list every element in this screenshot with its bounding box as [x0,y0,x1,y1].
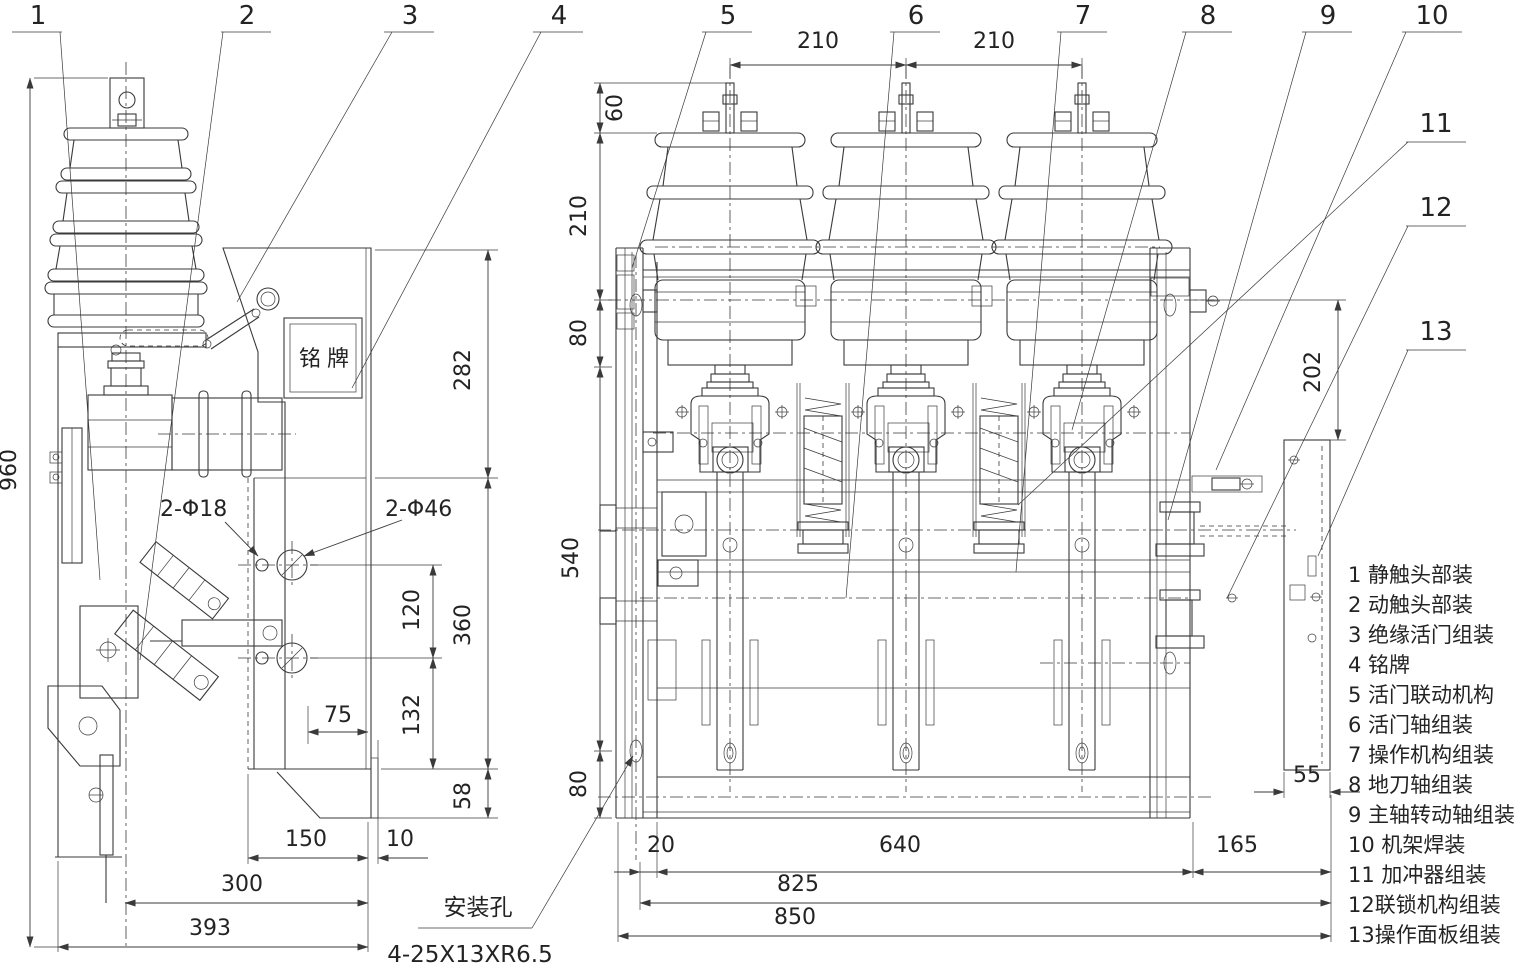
dim-165: 165 [1216,833,1258,858]
callout-6: 6 [908,1,925,31]
callout-5: 5 [720,1,737,31]
base-beam [616,777,1190,818]
mounting-slot-spec: 4-25X13XR6.5 [387,942,553,968]
callout-2: 2 [239,1,256,31]
dim-282: 282 [451,349,476,391]
left-frame-column [616,248,657,860]
pole-body [50,353,296,563]
dim-80-top: 80 [567,319,592,347]
legend-item-12: 12联锁机构组装 [1348,893,1501,917]
legend-item-2: 2 动触头部装 [1348,593,1473,617]
dim-960: 960 [0,449,22,491]
callout-11: 11 [1419,109,1452,139]
dim-825: 825 [777,872,819,897]
dim-2xphi46: 2-Φ46 [385,497,452,522]
dim-75: 75 [324,703,352,728]
callout-7: 7 [1075,1,1092,31]
mounting-hole-label: 安装孔 [444,895,513,921]
legend-item-10: 10 机架焊装 [1348,833,1465,857]
static-contact-terminal [110,78,144,128]
dim-120: 120 [400,589,425,631]
callout-13: 13 [1419,317,1452,347]
legend-item-4: 4 铭牌 [1348,653,1410,677]
dim-360: 360 [451,604,476,646]
dim-10: 10 [386,827,414,852]
legend-item-5: 5 活门联动机构 [1348,683,1494,707]
nameplate-label: 铭牌 [299,347,355,372]
dim-202: 202 [1301,351,1326,393]
dim-55: 55 [1293,763,1321,788]
legend-item-9: 9 主轴转动轴组装 [1348,803,1515,827]
operating-panel [1284,440,1330,770]
mounting-shelf [58,333,206,347]
callout-12: 12 [1419,193,1452,223]
callout-1: 1 [30,1,47,31]
legend-item-3: 3 绝缘活门组装 [1348,623,1494,647]
insulating-shutter-link [203,309,260,349]
callout-10: 10 [1415,1,1448,31]
mounting-plate [238,478,378,864]
dim-850: 850 [774,905,816,930]
callouts: 1 2 3 4 5 6 7 8 9 10 11 12 13 [12,1,1466,660]
drawing-canvas: 铭牌 960 282 [0,0,1527,968]
callout-8: 8 [1200,1,1217,31]
right-frame-column [1150,248,1190,818]
dim-540: 540 [559,537,584,579]
dim-20: 20 [647,833,675,858]
dim-80-bottom: 80 [567,770,592,798]
dim-640: 640 [879,833,921,858]
dim-393: 393 [189,916,231,941]
engineering-drawing-page: { "labels": { "nameplate": "铭牌", "mounti… [0,0,1527,968]
legend-item-8: 8 地刀轴组装 [1348,773,1473,797]
left-view-dimensions: 960 282 360 58 120 132 75 150 10 300 393… [0,78,498,952]
legend-item-13: 13操作面板组装 [1348,923,1501,947]
legend-item-6: 6 活门轴组装 [1348,713,1473,737]
callout-4: 4 [551,1,568,31]
dim-2xphi18: 2-Φ18 [160,497,227,522]
dim-60: 60 [603,94,628,122]
dim-210-b: 210 [973,29,1015,54]
legend-item-1: 1 静触头部装 [1348,563,1473,587]
dim-150: 150 [285,827,327,852]
dim-210-a: 210 [797,29,839,54]
nameplate: 铭牌 [284,318,362,398]
dim-210-left: 210 [567,195,592,237]
dim-58: 58 [451,782,476,810]
legend-item-11: 11 加冲器组装 [1348,863,1486,887]
top-beam [643,270,1220,312]
parts-legend: 1 静触头部装 2 动触头部装 3 绝缘活门组装 4 铭牌 5 活门联动机构 6… [1348,563,1515,947]
legend-item-7: 7 操作机构组装 [1348,743,1494,767]
dim-300: 300 [221,872,263,897]
mounting-hole-note: 安装孔 4-25X13XR6.5 [387,756,633,968]
moving-contact-assembly [48,542,282,903]
callout-9: 9 [1320,1,1337,31]
right-front-view [598,66,1330,860]
terminal-rod-hidden [111,330,208,355]
dim-132: 132 [400,694,425,736]
callout-3: 3 [402,1,419,31]
interlock-mechanism [1156,476,1286,648]
